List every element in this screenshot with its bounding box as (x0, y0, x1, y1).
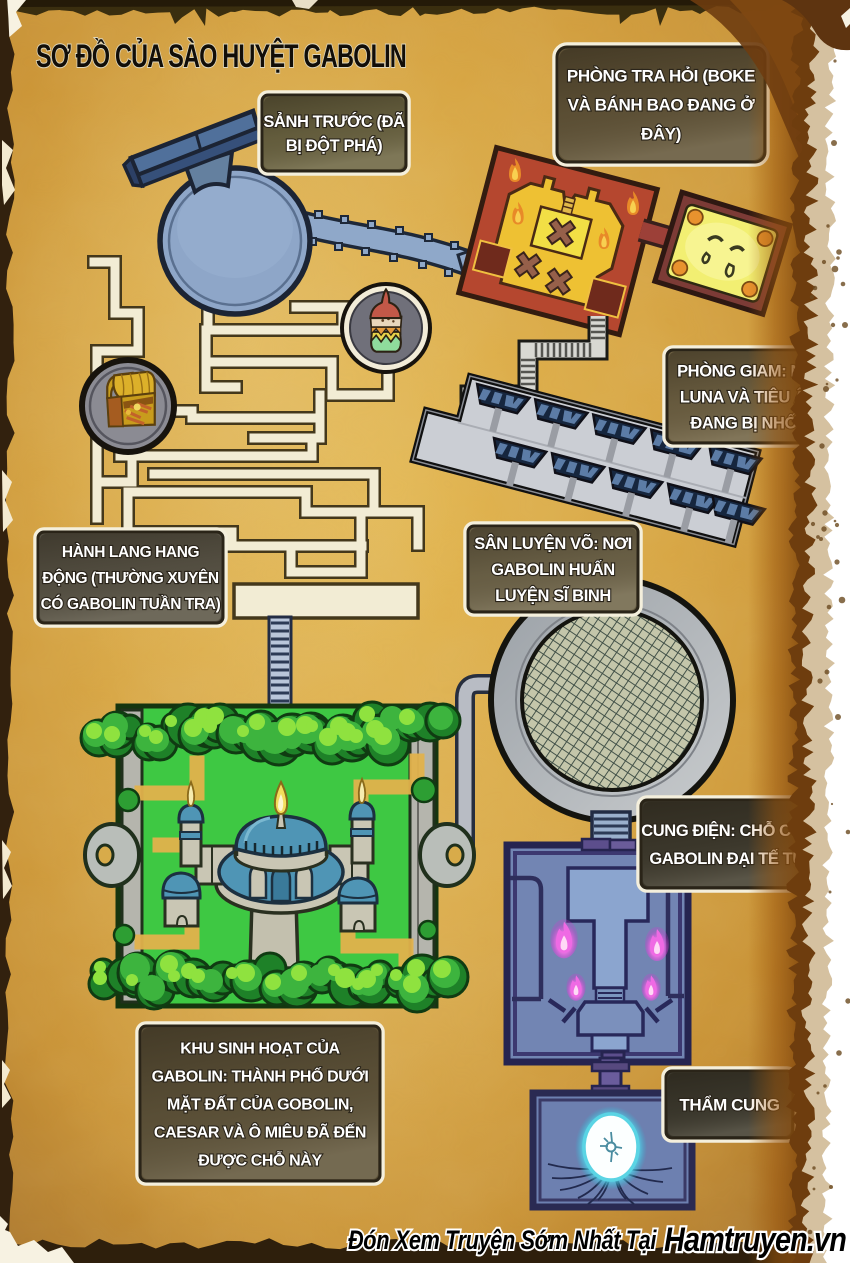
svg-text:BỊ ĐỘT PHÁ): BỊ ĐỘT PHÁ) (286, 136, 382, 155)
svg-text:KHU SINH HOẠT CỦA: KHU SINH HOẠT CỦA (180, 1038, 340, 1057)
svg-text:CÓ GABOLIN TUẦN TRA): CÓ GABOLIN TUẦN TRA) (41, 595, 221, 613)
svg-text:PHÒNG TRA HỎI (BOKE: PHÒNG TRA HỎI (BOKE (567, 67, 755, 86)
svg-text:SƠ ĐỒ CỦA SÀO HUYỆT GABOLIN: SƠ ĐỒ CỦA SÀO HUYỆT GABOLIN (36, 38, 406, 74)
svg-text:Đón Xem Truyện Sớm Nhất Tại: Đón Xem Truyện Sớm Nhất Tại (348, 1225, 657, 1255)
svg-text:VÀ BÁNH BAO ĐANG Ở: VÀ BÁNH BAO ĐANG Ở (568, 96, 756, 115)
svg-text:SÂN LUYỆN VÕ: NƠI: SÂN LUYỆN VÕ: NƠI (474, 533, 632, 553)
svg-text:ĐÂY): ĐÂY) (641, 125, 681, 144)
svg-text:GABOLIN: THÀNH PHỐ DƯỚI: GABOLIN: THÀNH PHỐ DƯỚI (152, 1065, 369, 1085)
svg-text:ĐỘNG (THƯỜNG XUYÊN: ĐỘNG (THƯỜNG XUYÊN (42, 569, 219, 587)
svg-text:GABOLIN HUẤN: GABOLIN HUẤN (491, 560, 615, 579)
svg-text:Hamtruyen.vn: Hamtruyen.vn (664, 1221, 846, 1259)
svg-text:SẢNH TRƯỚC (ĐÃ: SẢNH TRƯỚC (ĐÃ (263, 111, 405, 131)
svg-text:HÀNH LANG HANG: HÀNH LANG HANG (62, 544, 200, 561)
svg-text:CAESAR VÀ Ô MIÊU ĐÃ ĐẾN: CAESAR VÀ Ô MIÊU ĐÃ ĐẾN (154, 1121, 366, 1141)
svg-text:LUYỆN SĨ BINH: LUYỆN SĨ BINH (495, 585, 611, 605)
svg-text:ĐƯỢC CHỖ NÀY: ĐƯỢC CHỖ NÀY (198, 1150, 322, 1169)
svg-text:MẶT ĐẤT CỦA GOBOLIN,: MẶT ĐẤT CỦA GOBOLIN, (167, 1094, 353, 1113)
